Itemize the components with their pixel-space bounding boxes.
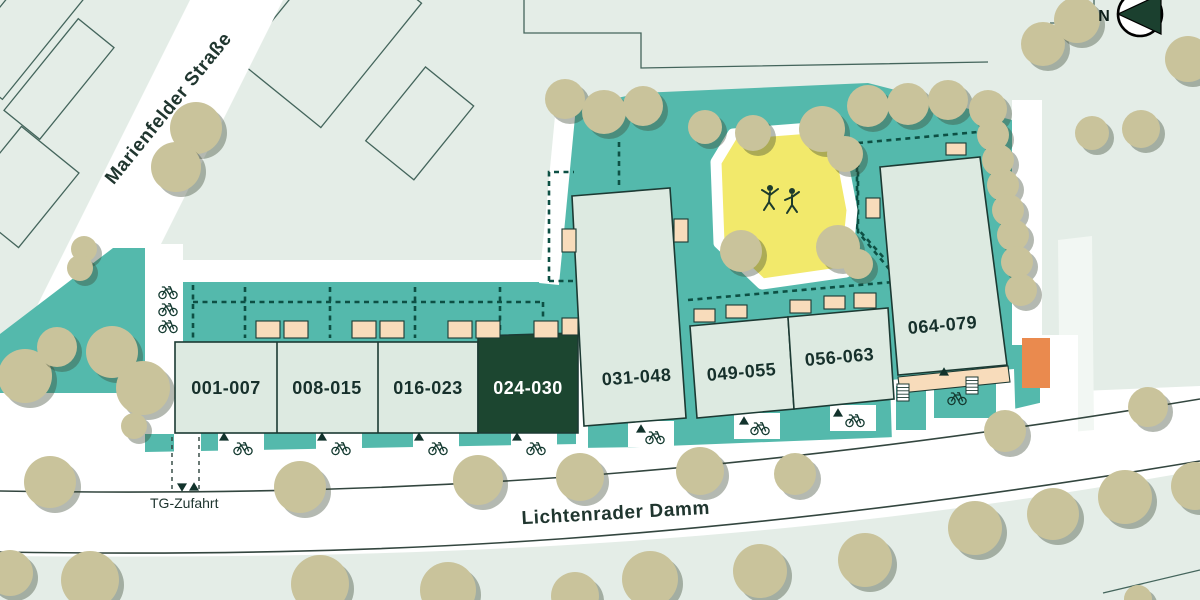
- tree-icon: [688, 110, 722, 144]
- tree-icon: [774, 453, 816, 495]
- tree-icon: [121, 413, 147, 439]
- tree-icon: [545, 79, 585, 119]
- tree-icon: [997, 219, 1029, 251]
- tree-icon: [1075, 116, 1109, 150]
- tree-icon: [1122, 110, 1160, 148]
- tree-icon: [843, 249, 873, 279]
- tree-icon: [676, 447, 724, 495]
- tree-icon: [151, 142, 201, 192]
- garage-entrance-label: TG-Zufahrt: [150, 495, 219, 511]
- tree-icon: [24, 456, 76, 508]
- site-plan: 001-007 008-015 016-023 024-030 031-048 …: [0, 0, 1200, 600]
- tree-icon: [623, 86, 663, 126]
- tree-icon: [1001, 246, 1033, 278]
- tree-icon: [274, 461, 326, 513]
- tree-icon: [735, 115, 771, 151]
- tree-icon: [928, 80, 968, 120]
- tree-icon: [847, 85, 889, 127]
- tree-icon: [887, 83, 929, 125]
- building-label: 016-023: [393, 378, 463, 398]
- tree-icon: [556, 453, 604, 501]
- tree-icon: [1098, 470, 1152, 524]
- tree-icon: [67, 255, 93, 281]
- stairs-icon: [897, 384, 909, 401]
- tree-icon: [984, 410, 1026, 452]
- tree-icon: [1005, 274, 1037, 306]
- tree-icon: [582, 90, 626, 134]
- site-plan-canvas: 001-007 008-015 016-023 024-030 031-048 …: [0, 0, 1200, 600]
- tree-icon: [838, 533, 892, 587]
- tree-icon: [1128, 387, 1168, 427]
- accent-orange-area: [1022, 338, 1050, 388]
- tree-icon: [1027, 488, 1079, 540]
- building-label: 001-007: [191, 378, 261, 398]
- tree-icon: [453, 455, 503, 505]
- tree-icon: [827, 136, 863, 172]
- north-arrow-icon: [1118, 0, 1162, 36]
- building-label: 008-015: [292, 378, 362, 398]
- tree-icon: [37, 327, 77, 367]
- tree-icon: [720, 230, 762, 272]
- north-label: N: [1098, 8, 1110, 25]
- stairs-icon: [966, 377, 978, 394]
- building-label-highlighted: 024-030: [493, 378, 563, 398]
- building-031-048[interactable]: [572, 188, 686, 426]
- tree-icon: [116, 361, 170, 415]
- tree-icon: [733, 544, 787, 598]
- tree-icon: [948, 501, 1002, 555]
